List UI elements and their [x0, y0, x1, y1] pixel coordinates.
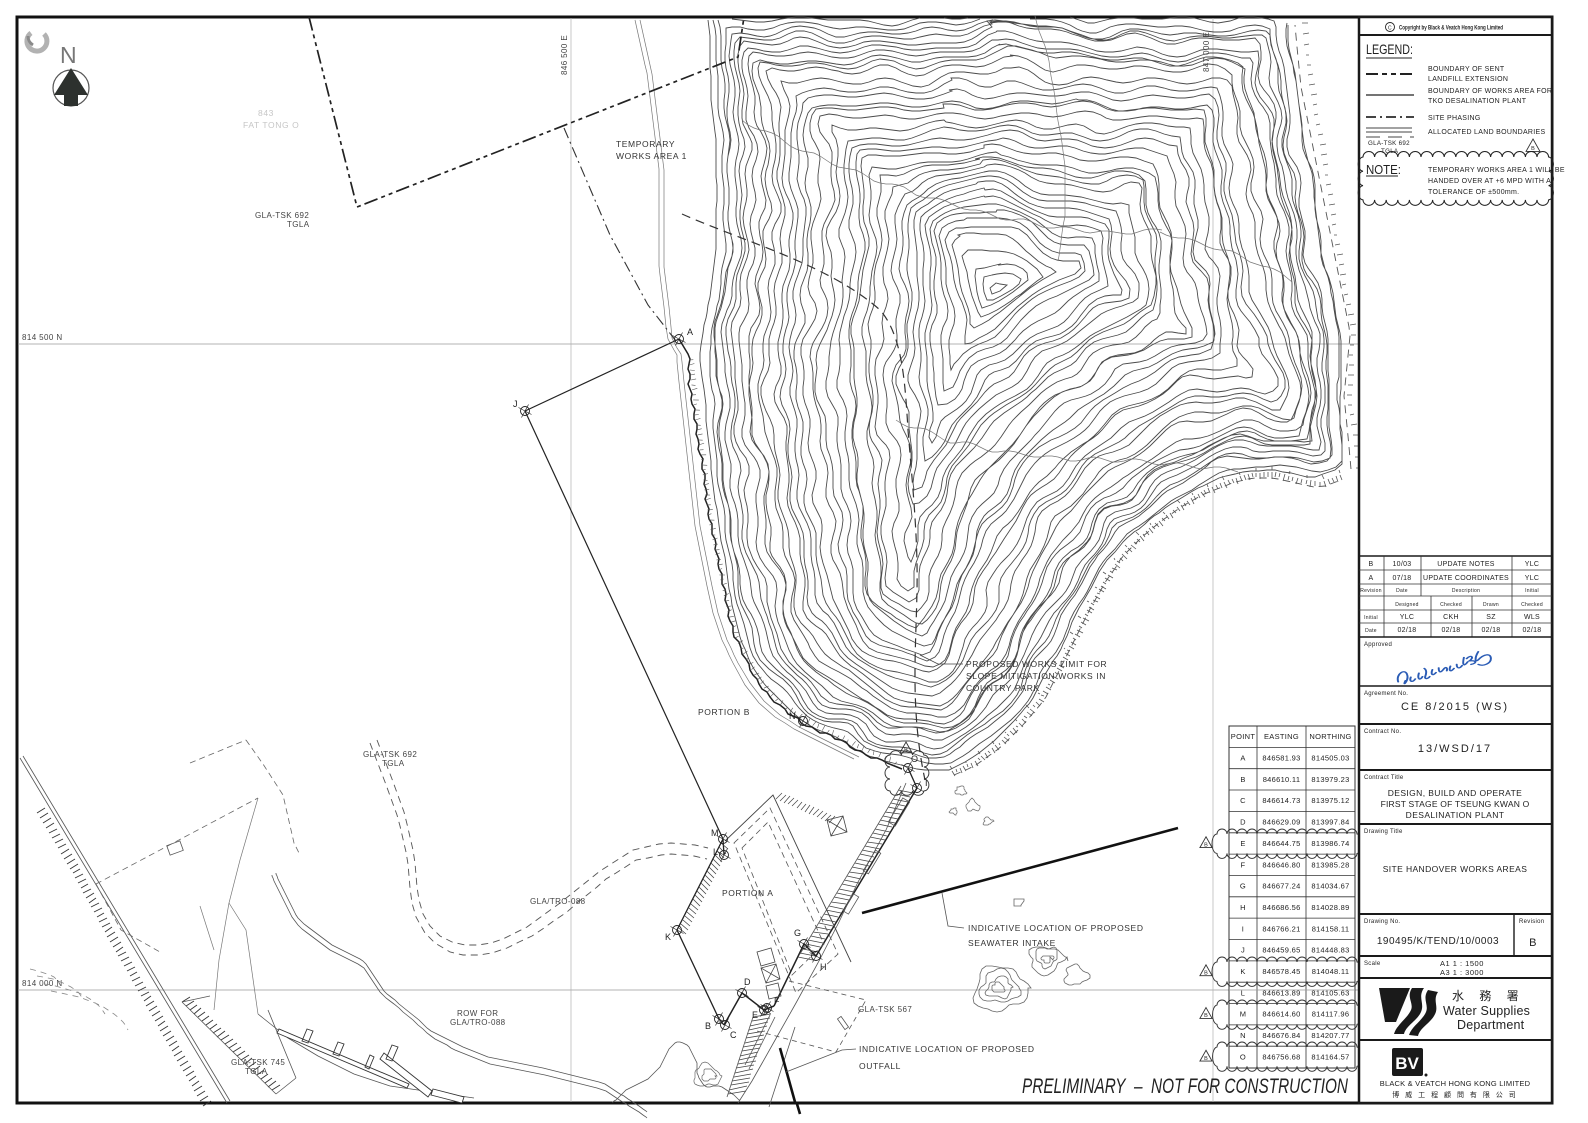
svg-text:GLA-TSK 692: GLA-TSK 692 [255, 211, 309, 220]
svg-text:Department: Department [1457, 1018, 1525, 1032]
svg-text:846 500 E: 846 500 E [560, 35, 569, 75]
svg-text:Revision: Revision [1519, 919, 1544, 925]
svg-text:813997.84: 813997.84 [1311, 818, 1349, 827]
svg-text:B: B [1369, 561, 1374, 568]
svg-text:814034.67: 814034.67 [1311, 882, 1349, 891]
svg-text:813985.28: 813985.28 [1311, 860, 1349, 869]
svg-text:846581.93: 846581.93 [1262, 754, 1300, 763]
svg-text:GLA-TSK 567: GLA-TSK 567 [858, 1005, 912, 1014]
svg-text:PROPOSED WORKS LIMIT FOR: PROPOSED WORKS LIMIT FOR [966, 659, 1107, 669]
svg-text:190495/K/TEND/10/0003: 190495/K/TEND/10/0003 [1377, 936, 1499, 947]
svg-text:Agreement No.: Agreement No. [1364, 691, 1408, 697]
svg-text:13/WSD/17: 13/WSD/17 [1418, 743, 1492, 755]
svg-text:PRELIMINARY – NOT FOR CONSTR: PRELIMINARY – NOT FOR CONSTRUCTION [1022, 1075, 1349, 1098]
svg-text:CE 8/2015 (WS): CE 8/2015 (WS) [1401, 701, 1509, 713]
svg-text:UPDATE COORDINATES: UPDATE COORDINATES [1423, 575, 1509, 582]
svg-text:843: 843 [258, 108, 274, 118]
svg-text:814048.11: 814048.11 [1312, 967, 1350, 976]
svg-text:E: E [1240, 839, 1245, 848]
svg-text:LEGEND:: LEGEND: [1366, 41, 1413, 57]
svg-text:K: K [665, 932, 671, 942]
svg-text:ROW FOR: ROW FOR [457, 1009, 498, 1018]
svg-text:C: C [1388, 26, 1392, 32]
svg-text:M: M [711, 828, 719, 838]
svg-text:OUTFALL: OUTFALL [859, 1061, 901, 1071]
svg-text:H: H [1240, 903, 1246, 912]
svg-text:B: B [1204, 971, 1208, 977]
svg-text:DESIGN, BUILD AND OPERATE: DESIGN, BUILD AND OPERATE [1388, 788, 1523, 798]
svg-text:LANDFILL EXTENSION: LANDFILL EXTENSION [1428, 76, 1508, 83]
svg-text:813986.74: 813986.74 [1311, 839, 1349, 848]
svg-text:CKH: CKH [1443, 614, 1459, 621]
svg-text:HANDED OVER AT +6 MPD WITH A: HANDED OVER AT +6 MPD WITH A [1428, 178, 1551, 185]
svg-text:TKO DESALINATION PLANT: TKO DESALINATION PLANT [1428, 98, 1527, 105]
svg-text:814164.57: 814164.57 [1311, 1052, 1349, 1061]
svg-text:TGLA: TGLA [287, 220, 310, 229]
svg-text:814 500 N: 814 500 N [22, 333, 63, 342]
svg-text:846646.80: 846646.80 [1262, 860, 1300, 869]
svg-text:YLC: YLC [1525, 561, 1540, 568]
svg-text:FIRST STAGE OF TSEUNG KWAN O: FIRST STAGE OF TSEUNG KWAN O [1381, 799, 1530, 809]
svg-text:814505.03: 814505.03 [1311, 754, 1349, 763]
svg-text:813975.12: 813975.12 [1311, 796, 1349, 805]
svg-text:SZ: SZ [1486, 614, 1496, 621]
svg-text:846644.75: 846644.75 [1262, 839, 1300, 848]
svg-text:Description: Description [1452, 588, 1480, 594]
svg-text:846459.65: 846459.65 [1262, 946, 1300, 955]
svg-text:BLACK & VEATCH HONG KONG LIMIT: BLACK & VEATCH HONG KONG LIMITED [1380, 1079, 1531, 1088]
svg-text:846756.68: 846756.68 [1262, 1052, 1300, 1061]
svg-text:Revision: Revision [1360, 588, 1382, 594]
svg-text:814207.77: 814207.77 [1311, 1031, 1349, 1040]
svg-text:N: N [789, 711, 796, 721]
svg-text:02/18: 02/18 [1397, 627, 1416, 634]
svg-text:814117.96: 814117.96 [1312, 1010, 1350, 1019]
svg-text:M: M [1240, 1010, 1247, 1019]
svg-text:846629.09: 846629.09 [1262, 818, 1300, 827]
svg-text:TEMPORARY WORKS AREA 1 WILL BE: TEMPORARY WORKS AREA 1 WILL BE [1428, 167, 1565, 174]
svg-text:J: J [513, 399, 518, 409]
svg-text:FAT TONG O: FAT TONG O [243, 120, 299, 130]
svg-text:A: A [1369, 575, 1374, 582]
svg-text:NORTHING: NORTHING [1309, 732, 1351, 741]
svg-text:N: N [60, 42, 77, 68]
svg-text:B: B [1204, 842, 1208, 848]
svg-text:A: A [687, 327, 693, 337]
svg-text:846676.84: 846676.84 [1262, 1031, 1300, 1040]
svg-text:846614.73: 846614.73 [1262, 796, 1300, 805]
svg-text:UPDATE NOTES: UPDATE NOTES [1437, 561, 1495, 568]
svg-text:水 務 署: 水 務 署 [1452, 989, 1525, 1003]
svg-text:N: N [1240, 1031, 1246, 1040]
svg-text:TEMPORARY: TEMPORARY [616, 139, 675, 149]
svg-text:O: O [911, 754, 918, 764]
svg-text:SITE PHASING: SITE PHASING [1428, 115, 1481, 122]
svg-text:A: A [1240, 754, 1245, 763]
svg-text:814448.83: 814448.83 [1311, 946, 1349, 955]
svg-text:PORTION B: PORTION B [698, 707, 750, 717]
svg-text:SLOPE MITIGATION WORKS IN: SLOPE MITIGATION WORKS IN [966, 671, 1106, 681]
svg-text:TOLERANCE OF ±500mm.: TOLERANCE OF ±500mm. [1428, 189, 1519, 196]
svg-text:E: E [752, 1010, 758, 1020]
svg-text:10/03: 10/03 [1392, 561, 1411, 568]
svg-text:D: D [744, 977, 751, 987]
svg-text:A3 1 : 3000: A3 1 : 3000 [1440, 968, 1484, 977]
svg-text:Initial: Initial [1525, 588, 1539, 594]
svg-text:Drawing Title: Drawing Title [1364, 829, 1403, 835]
svg-text:Water Supplies: Water Supplies [1443, 1004, 1530, 1018]
svg-text:814028.89: 814028.89 [1311, 903, 1349, 912]
svg-text:846610.11: 846610.11 [1263, 775, 1301, 784]
svg-text:G: G [1240, 882, 1246, 891]
svg-text:WLS: WLS [1524, 614, 1540, 621]
svg-text:C: C [730, 1030, 737, 1040]
svg-text:SEAWATER INTAKE: SEAWATER INTAKE [968, 938, 1056, 948]
svg-text:TGLA: TGLA [382, 759, 405, 768]
svg-text:GLA/TRO-088: GLA/TRO-088 [530, 897, 586, 906]
svg-text:Date: Date [1365, 628, 1377, 634]
svg-text:02/18: 02/18 [1522, 627, 1541, 634]
svg-text:846578.45: 846578.45 [1262, 967, 1300, 976]
svg-text:F: F [774, 996, 780, 1006]
svg-text:ALLOCATED LAND BOUNDARIES: ALLOCATED LAND BOUNDARIES [1428, 129, 1545, 136]
svg-text:GLA-TSK 692: GLA-TSK 692 [363, 750, 417, 759]
svg-text:Checked: Checked [1440, 602, 1462, 608]
svg-text:NOTE:: NOTE: [1366, 163, 1401, 177]
svg-text:INDICATIVE LOCATION OF PROPOSE: INDICATIVE LOCATION OF PROPOSED [859, 1044, 1035, 1054]
svg-text:Checked: Checked [1521, 602, 1543, 608]
svg-text:O: O [1240, 1052, 1246, 1061]
svg-text:K: K [1240, 967, 1245, 976]
svg-text:Contract Title: Contract Title [1364, 775, 1404, 781]
svg-text:B: B [1204, 1013, 1208, 1019]
svg-text:02/18: 02/18 [1441, 627, 1460, 634]
svg-text:YLC: YLC [1525, 575, 1540, 582]
svg-text:BV: BV [1395, 1054, 1419, 1073]
svg-text:SITE HANDOVER WORKS AREAS: SITE HANDOVER WORKS AREAS [1383, 864, 1528, 874]
svg-text:02/18: 02/18 [1481, 627, 1500, 634]
svg-text:PORTION A: PORTION A [722, 888, 774, 898]
svg-text:Designed: Designed [1395, 602, 1419, 608]
svg-text:814158.11: 814158.11 [1312, 924, 1350, 933]
svg-text:B: B [705, 1021, 711, 1031]
svg-text:BOUNDARY OF WORKS AREA FOR: BOUNDARY OF WORKS AREA FOR [1428, 88, 1552, 95]
svg-text:F: F [1241, 860, 1246, 869]
svg-text:WORKS AREA 1: WORKS AREA 1 [616, 151, 687, 161]
svg-text:C: C [1240, 796, 1246, 805]
svg-text:EASTING: EASTING [1264, 732, 1299, 741]
svg-text:Drawn: Drawn [1483, 602, 1499, 608]
svg-text:Initial: Initial [1364, 615, 1378, 621]
svg-text:B: B [904, 748, 908, 754]
svg-text:Date: Date [1396, 588, 1408, 594]
svg-text:846766.21: 846766.21 [1262, 924, 1300, 933]
svg-text:YLC: YLC [1400, 614, 1415, 621]
svg-text:博 威 工 程 顧 問 有 限 公 司: 博 威 工 程 顧 問 有 限 公 司 [1392, 1090, 1518, 1099]
svg-text:J: J [1241, 946, 1245, 955]
svg-text:846614.60: 846614.60 [1262, 1010, 1300, 1019]
svg-text:G: G [794, 928, 801, 938]
svg-text:COUNTRY PARK: COUNTRY PARK [966, 683, 1040, 693]
svg-text:D: D [1240, 818, 1246, 827]
svg-text:I: I [925, 778, 928, 788]
svg-text:A1 1 : 1500: A1 1 : 1500 [1440, 959, 1484, 968]
svg-text:B: B [1240, 775, 1245, 784]
svg-text:TGLA: TGLA [245, 1067, 268, 1076]
svg-text:846686.56: 846686.56 [1262, 903, 1300, 912]
svg-text:Scale: Scale [1364, 961, 1381, 967]
svg-text:846677.24: 846677.24 [1262, 882, 1300, 891]
svg-text:GLA-TSK 692: GLA-TSK 692 [1368, 140, 1410, 147]
svg-text:L: L [713, 847, 718, 857]
svg-text:Drawing No.: Drawing No. [1364, 919, 1400, 925]
svg-text:GLA/TRO-088: GLA/TRO-088 [450, 1018, 506, 1027]
svg-text:Copyright by Black & Veatch Ho: Copyright by Black & Veatch Hong Kong Li… [1399, 25, 1503, 32]
svg-text:GLA-TSK 745: GLA-TSK 745 [231, 1058, 285, 1067]
svg-text:Contract No.: Contract No. [1364, 729, 1401, 735]
svg-text:DESALINATION PLANT: DESALINATION PLANT [1406, 810, 1505, 820]
svg-text:B: B [1204, 1056, 1208, 1062]
svg-text:POINT: POINT [1231, 732, 1256, 741]
svg-text:813979.23: 813979.23 [1311, 775, 1349, 784]
svg-text:B: B [1529, 937, 1537, 949]
svg-text:INDICATIVE LOCATION OF PROPOSE: INDICATIVE LOCATION OF PROPOSED [968, 923, 1144, 933]
svg-text:Approved: Approved [1364, 642, 1392, 648]
svg-text:BOUNDARY OF SENT: BOUNDARY OF SENT [1428, 66, 1505, 73]
svg-text:H: H [820, 962, 827, 972]
svg-text:I: I [1242, 924, 1244, 933]
svg-text:07/18: 07/18 [1392, 575, 1411, 582]
